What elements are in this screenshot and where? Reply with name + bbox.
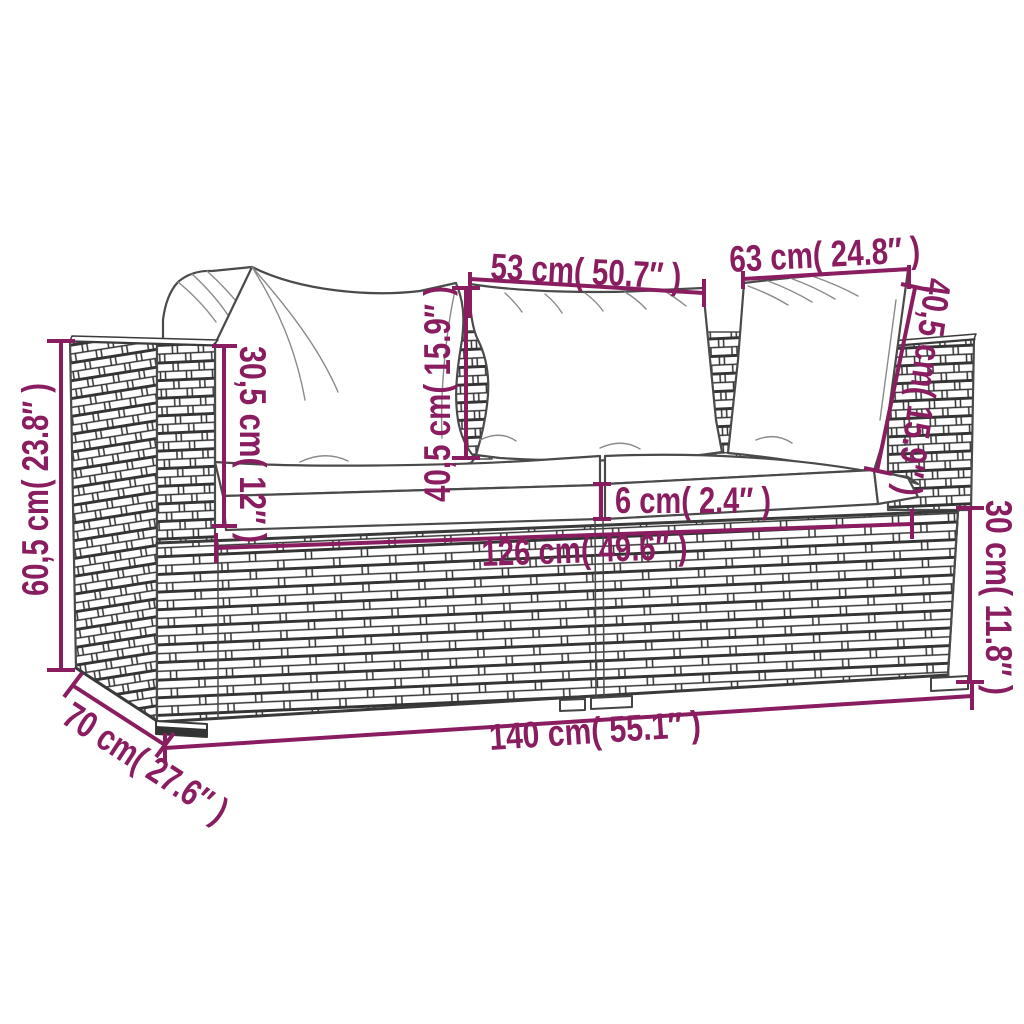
svg-text:40,5 cm( 15.9″ ): 40,5 cm( 15.9″ ): [417, 286, 458, 502]
svg-text:60,5 cm( 23.8″ ): 60,5 cm( 23.8″ ): [15, 383, 56, 596]
svg-text:126 cm( 49.6″ ): 126 cm( 49.6″ ): [481, 526, 688, 574]
svg-text:6 cm( 2.4″ ): 6 cm( 2.4″ ): [615, 480, 771, 521]
svg-text:30,5 cm( 12″ ): 30,5 cm( 12″ ): [232, 346, 273, 543]
svg-text:30 cm( 11.8″ ): 30 cm( 11.8″ ): [978, 500, 1019, 695]
